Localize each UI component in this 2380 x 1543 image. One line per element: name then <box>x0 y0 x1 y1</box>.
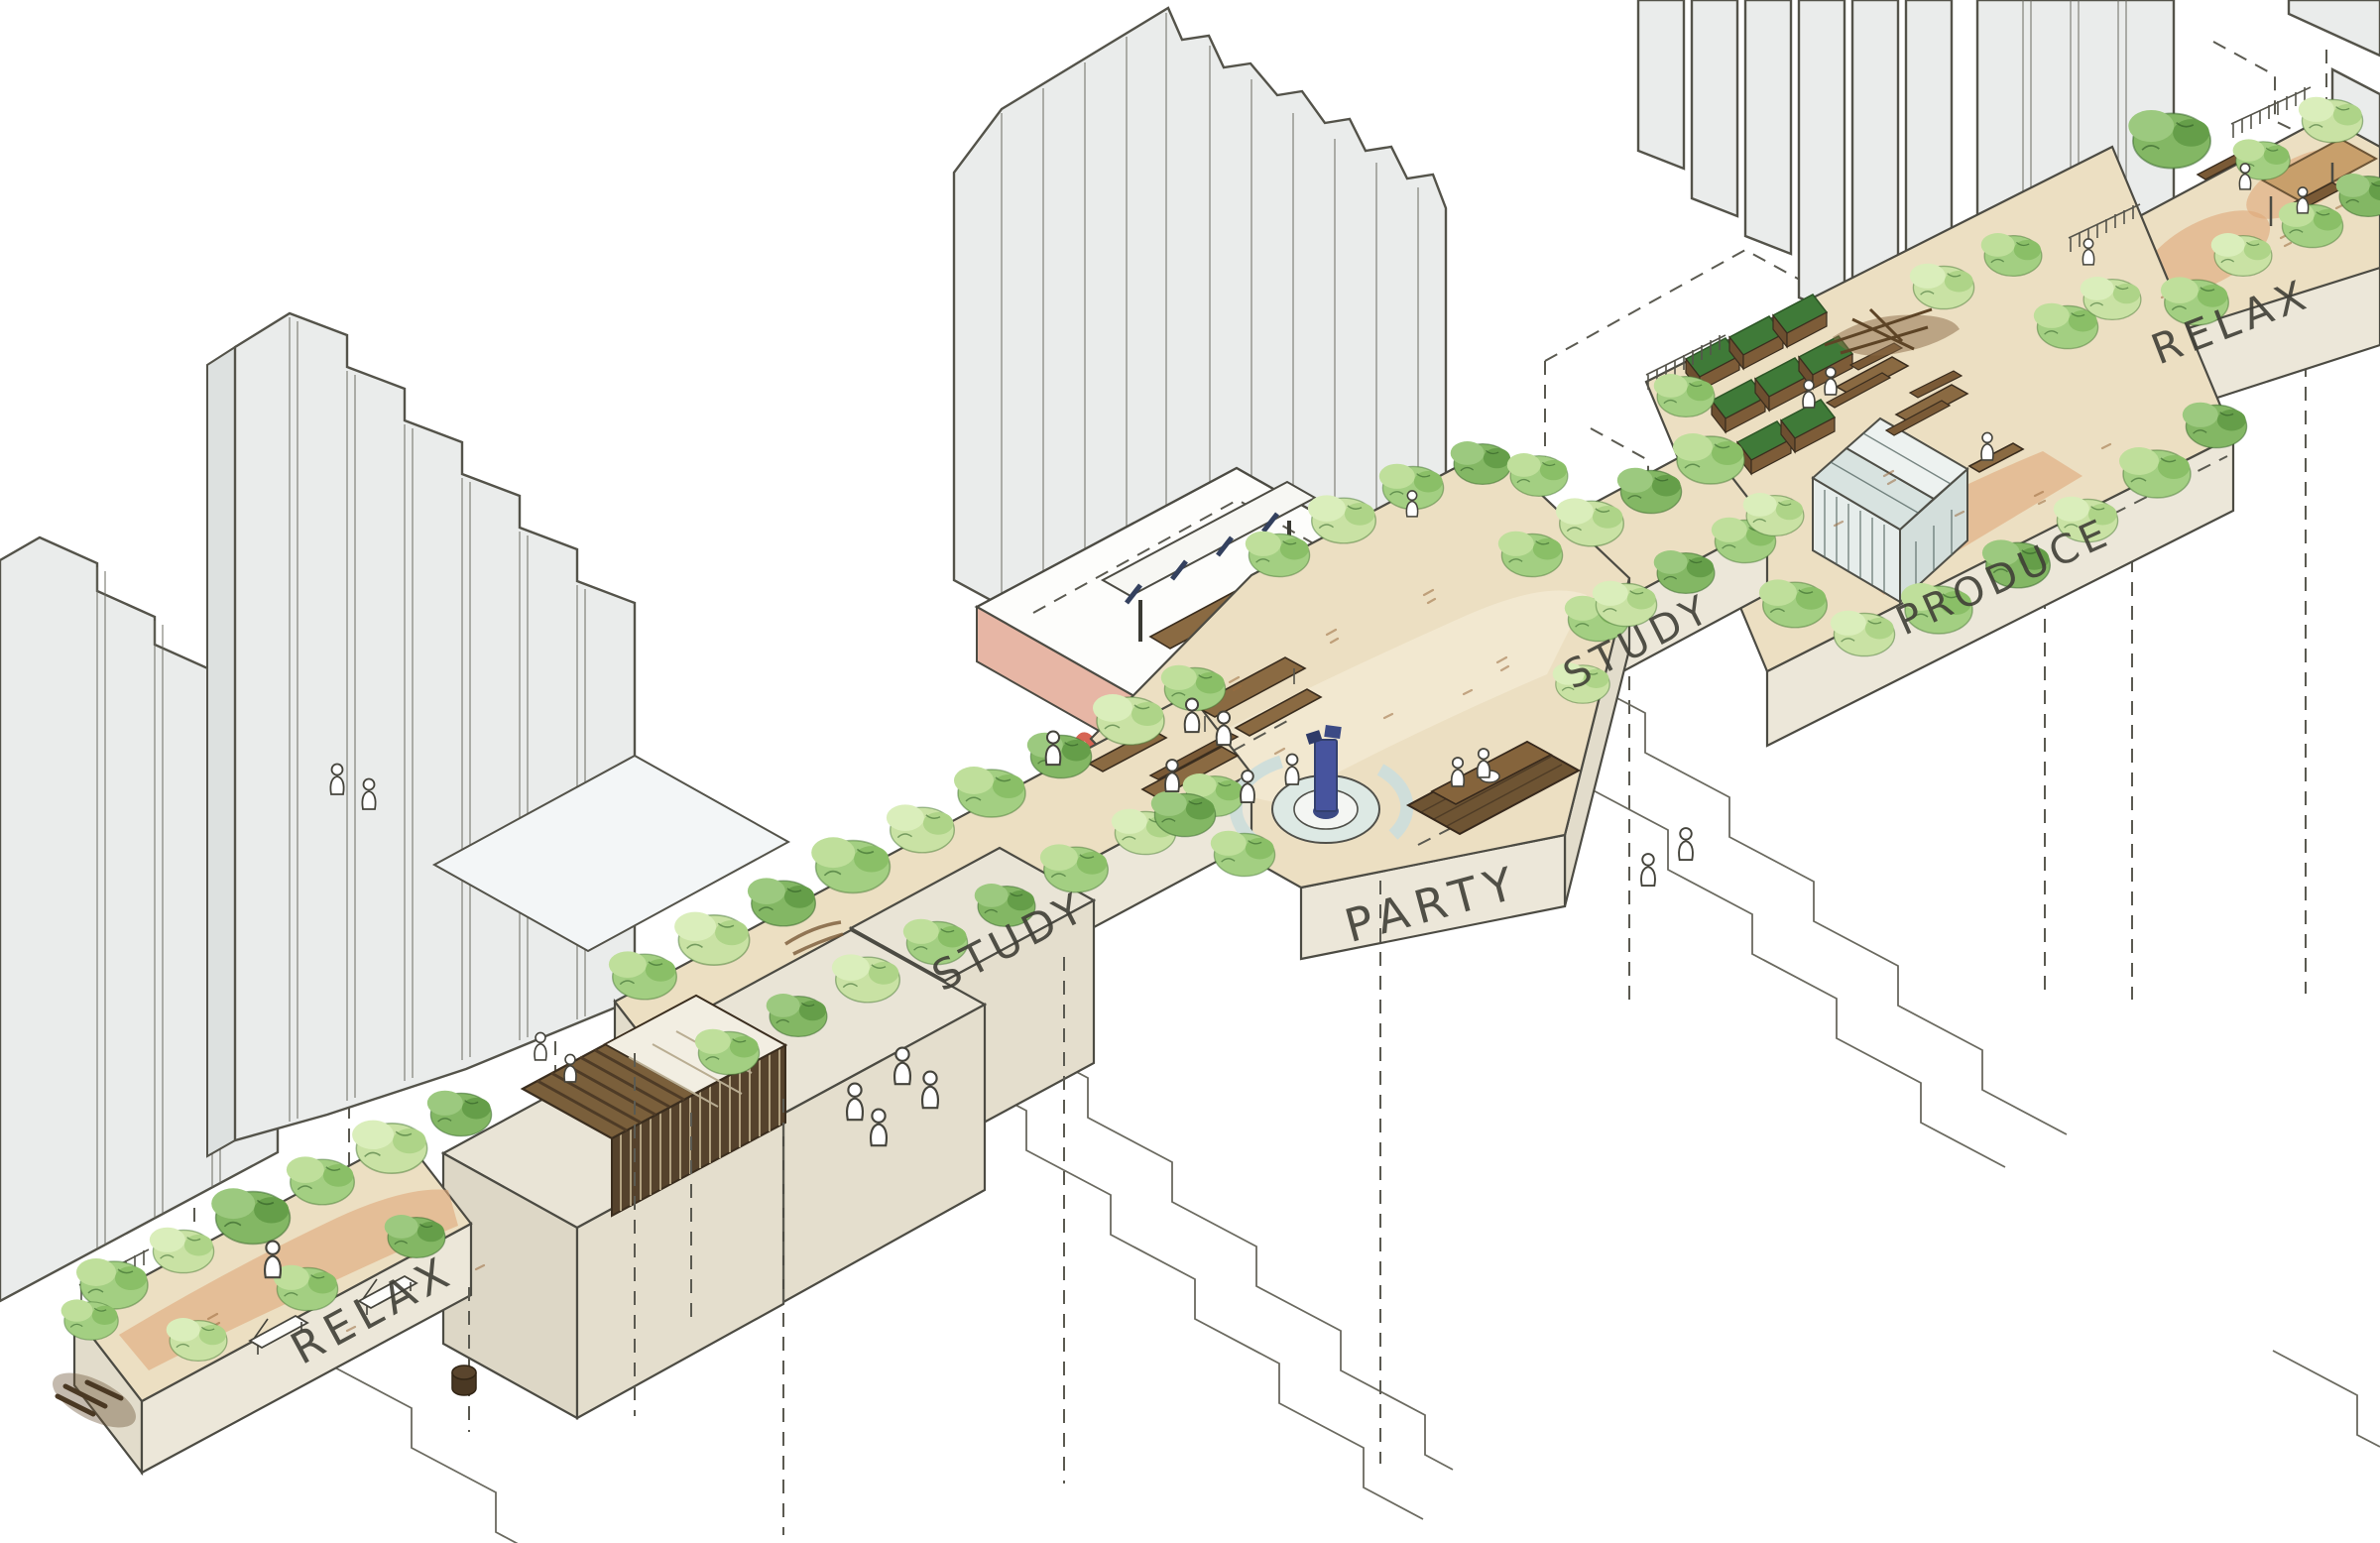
linear-rooftop-park-diagram: RELAX STUDY PARTY STUDY PRODUCE RELAX <box>0 0 2380 1543</box>
barrel <box>452 1365 476 1395</box>
axonometric-masterplan-illustration: RELAX STUDY PARTY STUDY PRODUCE RELAX <box>0 0 2380 1543</box>
tower-left-cluster <box>207 313 635 1156</box>
